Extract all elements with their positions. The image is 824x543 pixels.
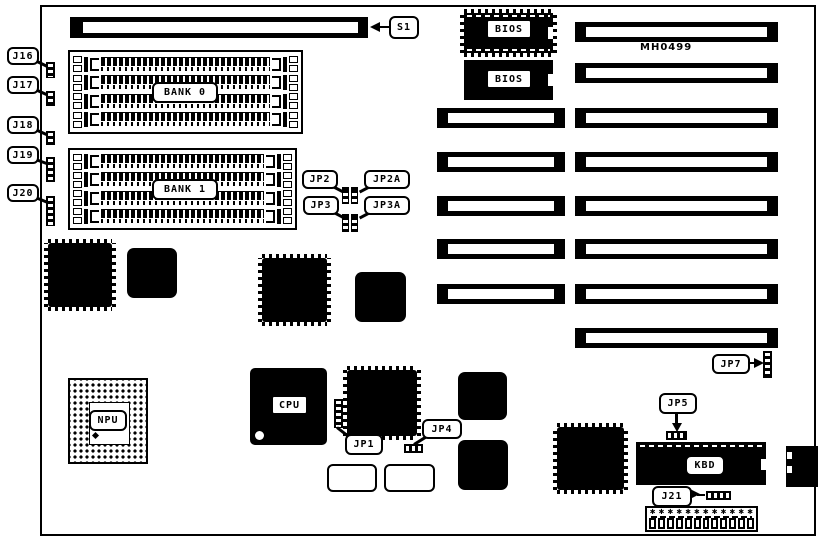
callout-j19: J19 [7,146,39,164]
j18-label: J18 [12,120,33,131]
jumper-j19 [46,157,55,182]
jumper-jp5 [666,431,687,440]
motherboard-diagram: S1 J16 J17 J18 J19 J20 BANK 0 BANK 1 JP2… [0,0,824,543]
jp7-label: JP7 [720,359,741,370]
jp1-label: JP1 [353,439,374,450]
j16-label: J16 [12,51,33,62]
callout-bank1: BANK 1 [152,179,218,200]
power-pin-boxes [649,518,754,529]
jp4-label: JP4 [431,424,452,435]
qfp-chip [347,370,417,436]
callout-j20: J20 [7,184,39,202]
isa-slot [575,196,778,216]
cpu-label: CPU [279,400,300,411]
keyboard-din-connector [786,446,818,487]
callout-jp2: JP2 [302,170,338,189]
slot-s1 [70,17,368,38]
bios-notch [548,27,553,39]
isa-slot [437,108,565,128]
isa-slot [575,239,778,259]
callout-jp5: JP5 [659,393,697,414]
bank0-label: BANK 0 [164,87,206,98]
qfp-chip [557,427,624,490]
logic-chip [458,440,508,490]
qfp-chip [48,243,112,307]
j19-label: J19 [12,150,33,161]
callout-bank0: BANK 0 [152,82,218,103]
din-notch [787,452,792,459]
j17-label: J17 [12,80,33,91]
simm-socket [73,209,292,224]
jp7-arrow-icon [754,358,764,368]
bios-bottom-label-plate: BIOS [487,70,531,88]
kbd-notch [761,459,766,470]
logic-chip [458,372,507,420]
oscillator [327,464,377,492]
power-connector: ✱✱✱✱✱✱✱✱✱✱✱✱ [645,506,758,532]
isa-slot [437,196,565,216]
simm-socket [73,154,292,169]
bios-bottom-label: BIOS [495,74,523,85]
callout-jp3a: JP3A [364,196,410,215]
bios-notch [548,74,553,86]
jumper-jp7 [763,351,772,378]
callout-j21: J21 [652,486,692,507]
isa-slot [575,22,778,42]
callout-jp7: JP7 [712,354,750,374]
jumper-jp1 [334,399,343,428]
bios-dash-top [467,15,550,17]
isa-slot [575,63,778,83]
kbd-label: KBD [694,460,715,471]
isa-slot [437,239,565,259]
simm-socket [73,57,298,72]
isa-slot [575,284,778,304]
s1-label: S1 [397,22,411,33]
jumper-jp4 [404,444,423,453]
jumper-j21 [706,491,731,500]
isa-slot [575,328,778,348]
bios-top-label: BIOS [495,24,523,35]
callout-j16: J16 [7,47,39,65]
isa-slot [575,108,778,128]
cpu-pin1-dot-icon [255,431,264,440]
callout-jp2a: JP2A [364,170,410,189]
callout-jp4: JP4 [422,419,462,439]
power-pins: ✱✱✱✱✱✱✱✱✱✱✱✱ [649,509,754,516]
jp5-label: JP5 [667,398,688,409]
isa-slot [437,152,565,172]
j20-label: J20 [12,188,33,199]
board-id-text: MH0499 [640,42,692,53]
simm-socket [73,112,298,127]
jp3a-label: JP3A [373,200,401,211]
bank1-label: BANK 1 [164,184,206,195]
jp5-arrow-icon [672,423,682,432]
isa-slot [575,152,778,172]
din-notch [787,466,792,473]
bios-dash-bottom [467,49,550,51]
callout-jp1: JP1 [345,434,383,455]
callout-j17: J17 [7,76,39,94]
cpu-label-plate: CPU [272,396,307,414]
bios-top-label-plate: BIOS [487,20,531,38]
jp2a-label: JP2A [373,174,401,185]
j21-leader [697,494,705,496]
callout-npu: NPU [89,410,127,431]
callout-s1: S1 [389,16,419,39]
logic-chip [355,272,406,322]
kbd-dash [640,445,762,447]
jp2-label: JP2 [309,174,330,185]
callout-jp3: JP3 [303,196,339,215]
jp3-label: JP3 [310,200,331,211]
callout-j18: J18 [7,116,39,134]
isa-slot [437,284,565,304]
qfp-chip [262,258,327,322]
npu-label: NPU [97,415,118,426]
kbd-label-plate: KBD [685,455,725,476]
j21-label: J21 [661,491,682,502]
logic-chip [127,248,177,298]
jumper-jp2 [342,187,358,204]
oscillator [384,464,435,492]
